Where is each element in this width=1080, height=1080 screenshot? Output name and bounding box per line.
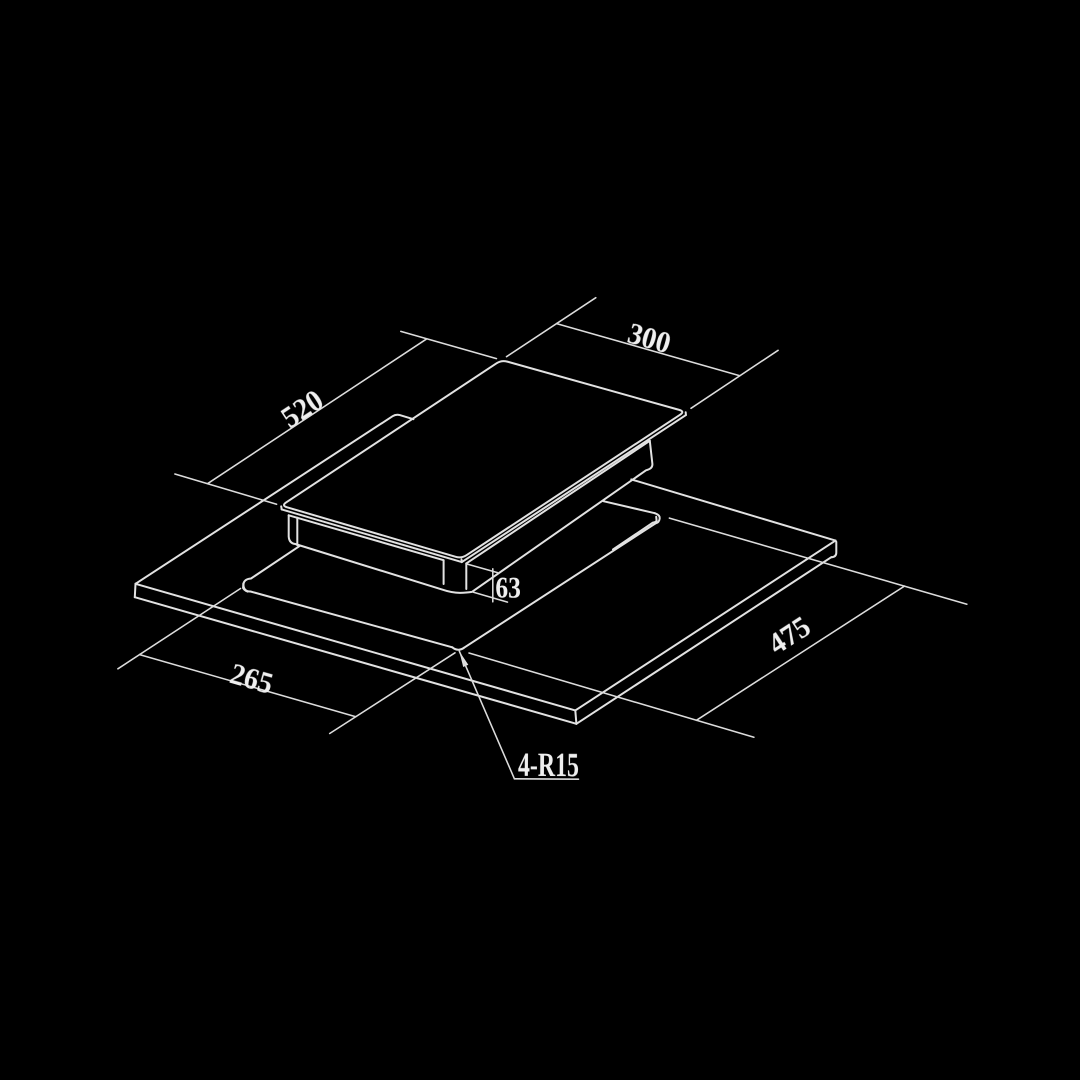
svg-text:63: 63 xyxy=(495,572,521,605)
svg-text:4-R15: 4-R15 xyxy=(518,747,579,784)
